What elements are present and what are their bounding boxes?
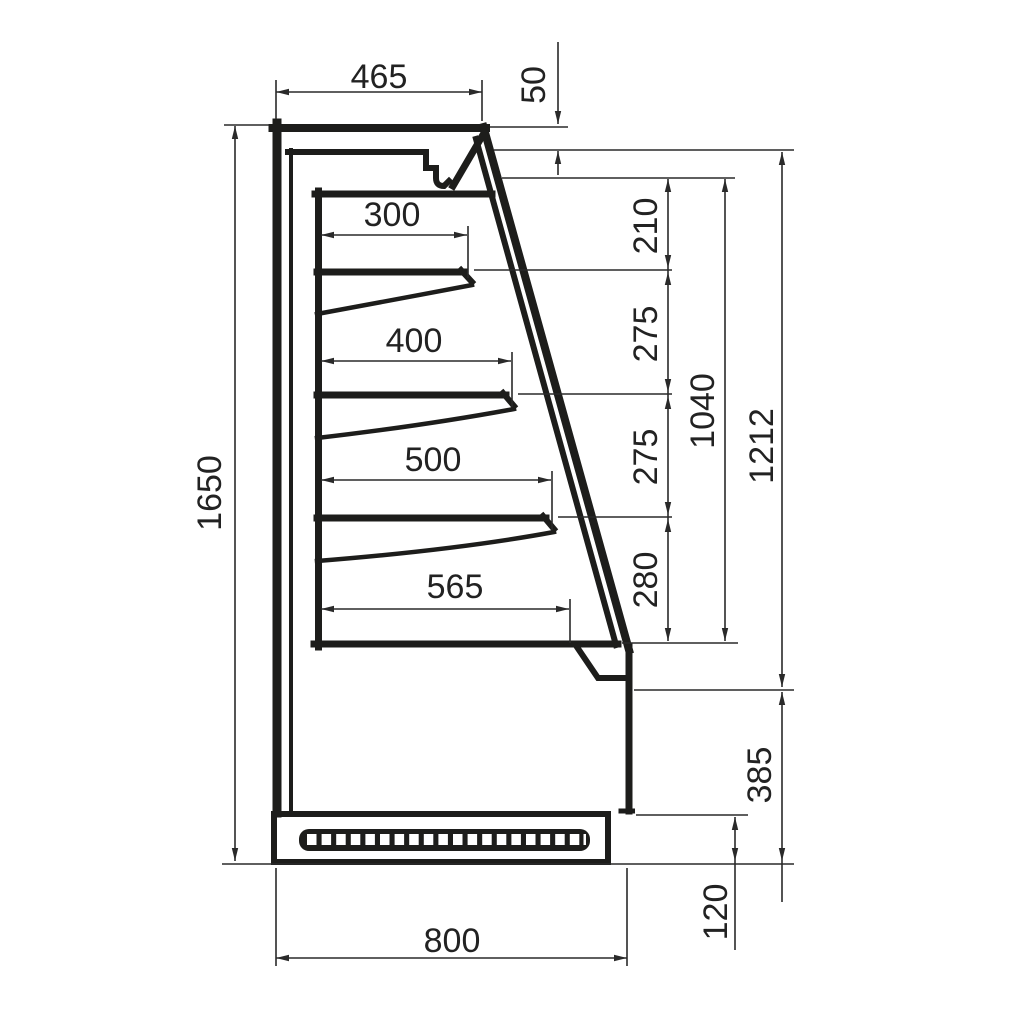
dim-shelf-gap-3-label: 280 — [627, 552, 665, 609]
dim-plinth-height-label: 120 — [697, 884, 735, 941]
shelf-3-underside — [317, 532, 554, 561]
dim-canopy-depth-label: 465 — [351, 58, 408, 96]
dim-lower-front-height-label: 385 — [741, 747, 779, 804]
technical-drawing-canvas: 465 300 400 500 565 800 50 210 275 275 2… — [0, 0, 1024, 1024]
display-case-section-drawing: 465 300 400 500 565 800 50 210 275 275 2… — [0, 0, 1024, 1024]
dimension-lines — [222, 42, 794, 966]
dim-shelf-2-depth-line — [321, 352, 512, 407]
dim-opening-height-label: 1040 — [684, 373, 722, 449]
dim-overall-height-label: 1650 — [191, 455, 229, 531]
under-floor-recess — [577, 647, 629, 678]
shelf-1-lip — [461, 270, 472, 282]
dim-shelf-gap-1-label: 275 — [627, 306, 665, 363]
dim-shelf-2-depth-label: 400 — [386, 322, 443, 360]
shelf-2 — [317, 393, 514, 438]
base-plinth — [274, 814, 608, 862]
shelf-3 — [317, 516, 554, 561]
shelf-1-underside — [317, 285, 472, 314]
front-slant-outer — [484, 127, 630, 650]
dim-shelf-3-depth-label: 500 — [405, 441, 462, 479]
shelf-2-underside — [317, 409, 514, 438]
dim-shelf-1-depth-label: 300 — [364, 196, 421, 234]
dim-opening-top-gap-label: 210 — [627, 198, 665, 255]
shelf-1 — [317, 270, 472, 314]
dim-shelf-gap-2-label: 275 — [627, 429, 665, 486]
canopy-inner-profile — [288, 152, 449, 186]
dim-upper-front-height-label: 1212 — [743, 408, 781, 484]
dim-canopy-front-height-label: 50 — [515, 66, 553, 104]
dim-bottom-shelf-depth-label: 565 — [427, 568, 484, 606]
dim-overall-depth-label: 800 — [424, 922, 481, 960]
